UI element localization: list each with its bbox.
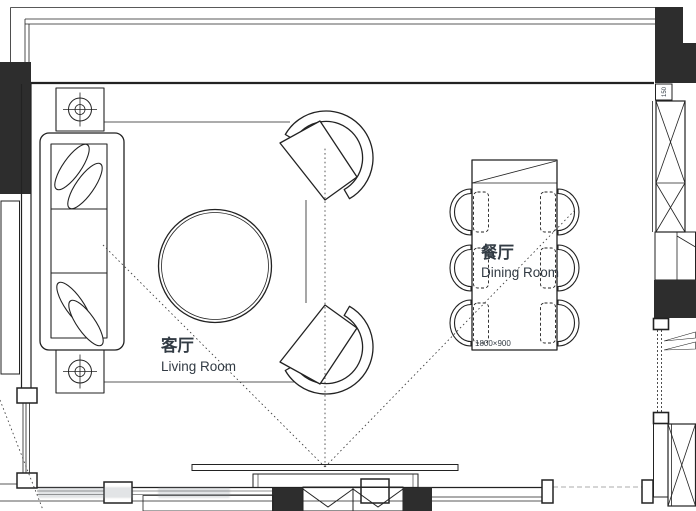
dining-chair (450, 300, 471, 346)
dining-chair (558, 189, 579, 235)
dining-chair (558, 300, 579, 346)
outer-boundary (11, 8, 657, 64)
dining-chair (558, 245, 579, 291)
louver-grille-left (1, 201, 20, 374)
floor-plan-drawing: 150 (0, 0, 696, 511)
wall-jambs (17, 388, 653, 503)
wall-dimension-box: 150 (656, 84, 673, 100)
armchair-bottom (280, 302, 373, 394)
black-wall-right (654, 280, 696, 318)
armchair-top (280, 111, 373, 203)
tall-cabinet-x (653, 101, 686, 232)
sofa (40, 133, 124, 350)
post-upper (654, 319, 669, 330)
black-column-top-right (655, 7, 696, 83)
railing-dashed (658, 330, 696, 413)
living-room-label-zh: 客厅 (160, 335, 195, 355)
wall-pier-bottom-right (654, 424, 669, 497)
black-wall-left (0, 62, 31, 194)
shelf-cabinet (655, 232, 696, 280)
post-lower (654, 413, 669, 424)
corner-cabinet-x (668, 424, 696, 506)
watermark (38, 487, 230, 498)
tv-console (253, 474, 418, 488)
living-room-label: 客厅 Living Room (160, 335, 236, 374)
dining-room-label-zh: 餐厅 (481, 242, 515, 262)
dining-chair (450, 189, 471, 235)
coffee-table (159, 210, 272, 323)
side-table-bottom (56, 350, 104, 393)
living-room-label-en: Living Room (161, 359, 236, 374)
dining-room-label-en: Dining Room (481, 265, 559, 280)
floor-plan-canvas: 150 (0, 0, 696, 511)
dining-chair (450, 245, 471, 291)
tv-feature-wall (272, 487, 432, 511)
side-table-top (56, 88, 104, 131)
wall-dimension-label: 150 (662, 86, 668, 97)
dining-table-size-label: 1800×900 (475, 339, 511, 348)
